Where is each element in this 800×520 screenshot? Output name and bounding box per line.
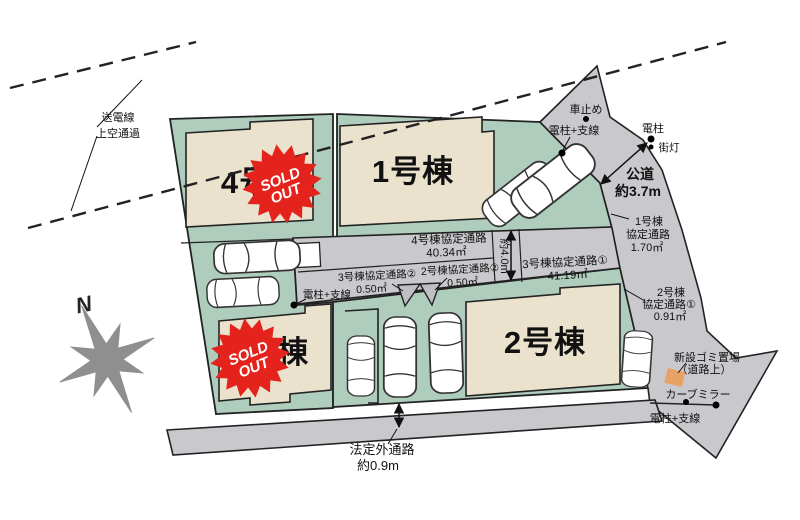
car [213,240,300,274]
public-road-label-2: 約3.7m [615,183,661,199]
curve-mirror-label: カーブミラー [665,387,730,401]
building-1-label: 1号棟 [372,154,454,189]
trash-label-2: （道路上） [677,362,732,376]
public-road-label-1: 公道 [626,166,654,182]
r1-label-2: 協定通路 [626,227,670,241]
pole-wire-mid-dot [291,302,298,309]
building-2-label: 2号棟 [504,325,586,360]
pole-label: 電柱 [642,121,664,135]
street-light-dot [649,145,654,150]
car [621,330,653,388]
r2b-label-2: 0.50㎡ [447,276,479,290]
car-stop-label: 車止め [570,102,603,116]
compass-rose: N [60,290,154,412]
r2a-label-3: 0.91㎡ [654,310,686,323]
r3b-label-2: 0.50㎡ [356,282,388,296]
road-width-40-label: 約4.0m [498,238,512,273]
car [206,276,279,308]
site-plan-svg: SOLD OUT 4号棟 1号棟 2号棟 3号棟 N [0,0,800,520]
pole-wire-bottom-dot [713,402,720,409]
pole-wire-bottom-label: 電柱+支線 [650,411,700,425]
hotei-label-1: 法定外通路 [349,442,414,457]
trash-label-1: 新設ゴミ置場 [674,350,740,364]
hotei-label-2: 約0.9m [357,458,399,473]
power-line-label-1: 送電線 [102,110,135,124]
car [348,336,375,396]
north-label: N [73,290,95,318]
car [384,317,416,397]
r2a-label-2: 協定通路① [642,297,696,311]
r2a-label-1: 2号棟 [657,285,685,299]
pole-wire-top-label: 電柱+支線 [549,123,599,137]
car-stop-dot [583,116,589,122]
r4-label-2: 40.34㎡ [426,245,467,259]
r1-label-1: 1号棟 [635,214,663,228]
pole-wire-top-dot [559,150,566,157]
street-light-label: 街灯 [659,141,680,154]
r3a-label-2: 41.19㎡ [547,268,588,283]
power-line-label-2: 上空通過 [96,126,140,140]
power-line-dashed-upper [10,42,196,88]
r1-label-3: 1.70㎡ [631,241,663,254]
pole-dot [648,136,655,143]
site-plan: SOLD OUT 4号棟 1号棟 2号棟 3号棟 N [0,0,800,520]
car [428,312,463,393]
pole-wire-mid-label: 電柱+支線 [303,288,352,301]
